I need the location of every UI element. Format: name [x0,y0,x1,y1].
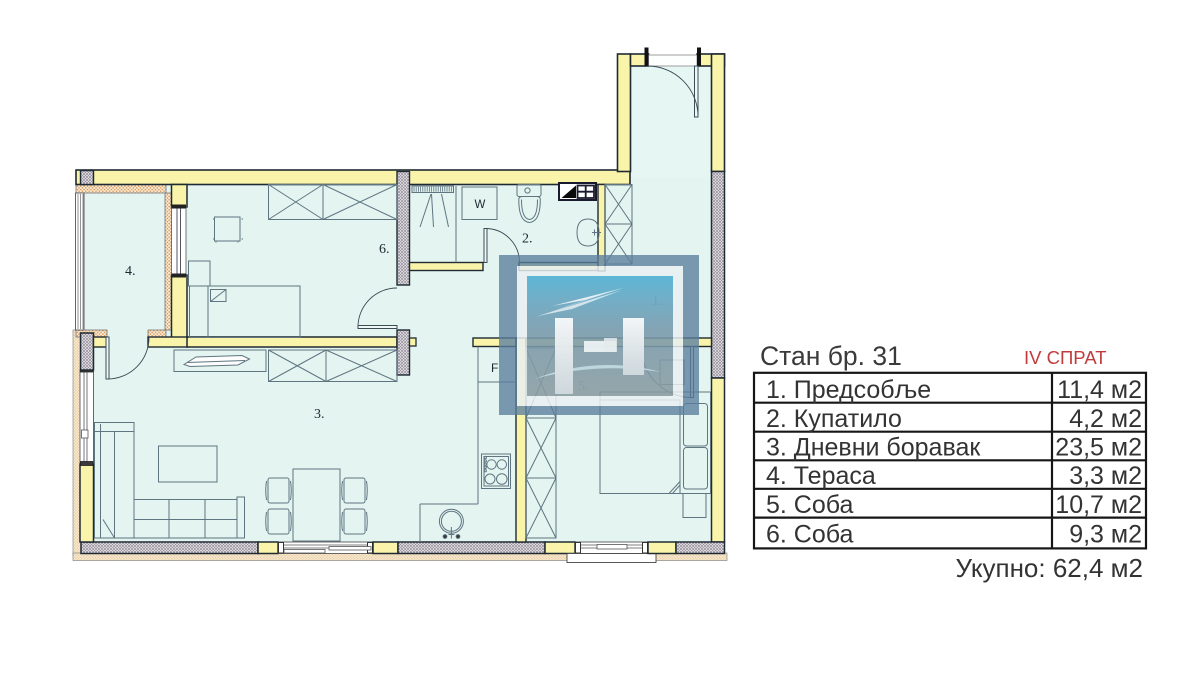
svg-text:Стан бр. 31: Стан бр. 31 [760,341,902,371]
svg-text:10,7 м2: 10,7 м2 [1055,491,1142,519]
svg-text:23,5 м2: 23,5 м2 [1055,434,1142,462]
svg-text:1. Предсобље: 1. Предсобље [766,376,931,404]
svg-text:W: W [475,199,486,211]
svg-text:5. Соба: 5. Соба [766,491,853,519]
svg-text:6. Соба: 6. Соба [766,521,853,549]
svg-text:4. Тераса: 4. Тераса [766,462,876,490]
svg-text:2. Купатило: 2. Купатило [766,405,902,433]
svg-text:9,3 м2: 9,3 м2 [1069,521,1142,549]
svg-text:3,3 м2: 3,3 м2 [1069,462,1142,490]
svg-text:4.: 4. [125,264,136,279]
svg-text:Укупно: 62,4 м2: Укупно: 62,4 м2 [955,553,1143,583]
svg-text:F: F [491,361,498,375]
svg-text:4,2 м2: 4,2 м2 [1069,405,1142,433]
svg-text:6.: 6. [379,242,390,257]
svg-text:11,4 м2: 11,4 м2 [1057,376,1142,404]
svg-text:3. Дневни боравак: 3. Дневни боравак [766,434,981,462]
svg-text:3.: 3. [314,407,325,422]
svg-text:IV СПРАТ: IV СПРАТ [1024,347,1107,368]
svg-text:2.: 2. [522,232,533,247]
